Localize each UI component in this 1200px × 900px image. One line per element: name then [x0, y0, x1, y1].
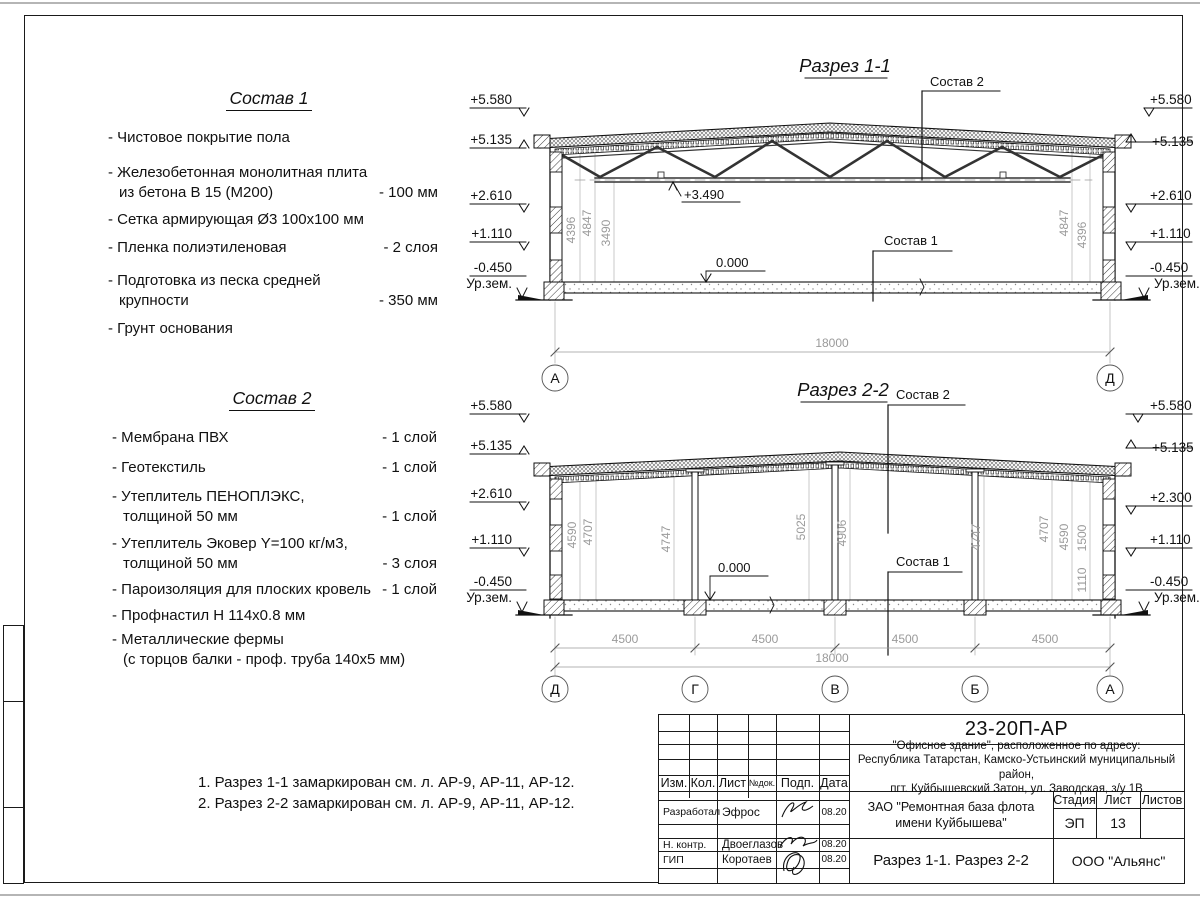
list-item: - Мембрана ПВХ - 1 слой: [112, 428, 437, 448]
paper-edge-top: [0, 2, 1200, 4]
levels-right-2: +5.580 +5.135 +2.300 +1.110 -0.450 Ур.зе…: [1126, 398, 1200, 612]
levels-left-1: +5.580 +5.135 +2.610 +1.110 -0.450 Ур.зе…: [466, 92, 529, 298]
sostav1-title-text: Состав 1: [226, 88, 313, 111]
list-item: - Утеплитель ПЕНОПЛЭКС,толщиной 50 мм - …: [112, 487, 437, 527]
ground-label: Ур.зем.: [1154, 590, 1200, 605]
svg-text:+5.135: +5.135: [470, 438, 512, 453]
svg-text:+1.110: +1.110: [471, 532, 512, 547]
col-podp: Подп.: [776, 775, 819, 791]
svg-text:4707: 4707: [581, 518, 595, 545]
drawing-sheet: { "sostav1": { "title": "Состав 1", "ite…: [0, 0, 1200, 900]
level-floor-1: 0.000: [716, 255, 749, 270]
levels-right-1: +5.580 +5.135 +2.610 +1.110 -0.450 Ур.зе…: [1126, 92, 1200, 298]
date-2: 08.20: [819, 838, 849, 851]
col-list: Лист: [717, 775, 748, 791]
svg-text:1110: 1110: [1075, 567, 1089, 592]
stage-value: ЭП: [1053, 808, 1096, 838]
name-efros: Эфрос: [719, 800, 775, 824]
sostav1-list: - Чистовое покрытие пола - Железобетонна…: [108, 128, 438, 339]
leader-labels-1: Состав 2 Состав 1: [873, 74, 1000, 301]
svg-text:Б: Б: [970, 681, 979, 697]
sostav1-title: Состав 1: [108, 88, 430, 109]
svg-text:1500: 1500: [1075, 524, 1089, 551]
span-dim-1: 18000 А Д: [542, 302, 1123, 391]
margin-box-3: [3, 807, 24, 884]
paper-edge-bottom: [0, 894, 1200, 896]
label-sostav1: Состав 1: [884, 233, 938, 248]
svg-text:+2.610: +2.610: [1150, 188, 1192, 203]
list-item: - Пленка полиэтиленовая - 2 слоя: [108, 238, 438, 258]
list-item: - Чистовое покрытие пола: [108, 128, 438, 148]
svg-text:4707: 4707: [1037, 515, 1051, 542]
doc-title: Разрез 1-1. Разрез 2-2: [849, 838, 1053, 883]
svg-text:4500: 4500: [1032, 632, 1059, 646]
stage-label: Стадия: [1053, 791, 1096, 808]
company: ООО "Альянс": [1053, 838, 1184, 883]
vertical-dims-1: 4396 4847 3490 4847 4396: [564, 209, 1089, 248]
svg-text:+5.580: +5.580: [470, 398, 512, 413]
svg-text:4847: 4847: [580, 209, 594, 236]
list-item: - Железобетонная монолитная плитаиз бето…: [108, 163, 438, 203]
level-floor-2: 0.000: [718, 560, 751, 575]
svg-text:+1.110: +1.110: [1150, 532, 1191, 547]
svg-text:-0.450: -0.450: [1150, 574, 1188, 589]
col-data: Дата: [819, 775, 849, 791]
col-kol: Кол.: [689, 775, 717, 791]
span-value: 18000: [815, 336, 849, 350]
svg-text:+1.110: +1.110: [471, 226, 512, 241]
walls-1: [550, 148, 1115, 300]
svg-text:+5.580: +5.580: [1150, 398, 1192, 413]
leader-labels-2: Состав 2 Состав 1: [888, 387, 965, 655]
svg-text:4747: 4747: [659, 525, 673, 552]
svg-text:-0.450: -0.450: [474, 574, 512, 589]
svg-text:+5.580: +5.580: [470, 92, 512, 107]
note-2: 2. Разрез 2-2 замаркирован см. л. АР-9, …: [198, 793, 575, 814]
svg-text:+2.610: +2.610: [470, 188, 512, 203]
ground-label: Ур.зем.: [1154, 276, 1200, 291]
role-gip: ГИП: [660, 851, 716, 868]
axis-bubble-a: А: [550, 370, 560, 386]
levels-left-2: +5.580 +5.135 +2.610 +1.110 -0.450 Ур.зе…: [466, 398, 529, 612]
axis-bubble-d: Д: [1105, 370, 1115, 386]
section1-title: Разрез 1-1: [799, 55, 891, 76]
svg-text:Д: Д: [550, 681, 560, 697]
role-nkontr: Н. контр.: [660, 838, 716, 851]
list-item: - Сетка армирующая Ø3 100х100 мм: [108, 210, 438, 230]
svg-text:+5.135: +5.135: [1152, 134, 1194, 149]
list-item: - Грунт основания: [108, 319, 438, 339]
svg-text:А: А: [1105, 681, 1115, 697]
svg-text:+5.580: +5.580: [1150, 92, 1192, 107]
floor-1: [516, 279, 1150, 300]
list-item: - Утеплитель Эковер Y=100 кг/м3,толщиной…: [112, 534, 437, 574]
sheet-notes: 1. Разрез 1-1 замаркирован см. л. АР-9, …: [198, 772, 575, 814]
internal-marks-1: +3.490 0.000: [669, 182, 765, 282]
sostav2-title-text: Состав 2: [229, 388, 316, 411]
ground-label: Ур.зем.: [466, 590, 512, 605]
section2-title: Разрез 2-2: [797, 379, 889, 400]
svg-text:4590: 4590: [1057, 523, 1071, 550]
svg-text:4847: 4847: [1057, 209, 1071, 236]
margin-box-1: [3, 625, 24, 702]
title-block: Изм. Кол. Лист №док. Подп. Дата Разработ…: [658, 714, 1185, 884]
col-ndok: №док.: [748, 775, 776, 791]
signatures: [776, 795, 819, 880]
svg-text:3490: 3490: [599, 219, 613, 246]
list-item: - Геотекстиль - 1 слой: [112, 458, 437, 478]
svg-text:4396: 4396: [564, 216, 578, 243]
sostav2-list: - Мембрана ПВХ - 1 слой - Геотекстиль - …: [112, 428, 437, 670]
list-item: - Подготовка из песка среднейкрупности -…: [108, 271, 438, 311]
object-address: "Офисное здание", расположенное по адрес…: [851, 744, 1182, 791]
svg-text:+5.135: +5.135: [1152, 440, 1194, 455]
date-1: 08.20: [819, 800, 849, 824]
svg-text:+2.610: +2.610: [470, 486, 512, 501]
sheet-number: 13: [1096, 808, 1140, 838]
sections-drawing: Разрез 1-1: [460, 55, 1200, 715]
list-item: - Металлические фермы(с торцов балки - п…: [112, 630, 437, 670]
margin-box-2: [3, 701, 24, 808]
date-3: 08.20: [819, 851, 849, 868]
svg-text:4590: 4590: [565, 521, 579, 548]
sostav2-title: Состав 2: [112, 388, 432, 409]
svg-text:4500: 4500: [752, 632, 779, 646]
internal-marks-2: 0.000: [705, 560, 768, 600]
svg-text:+1.110: +1.110: [1150, 226, 1191, 241]
vertical-dims-2: 4590 4707 4747 5025 4906 4747 4707 4590 …: [565, 513, 1089, 592]
col-izm: Изм.: [659, 775, 689, 791]
svg-text:Г: Г: [691, 681, 699, 697]
note-1: 1. Разрез 1-1 замаркирован см. л. АР-9, …: [198, 772, 575, 793]
level-truss: +3.490: [684, 187, 724, 202]
svg-text:4906: 4906: [835, 519, 849, 546]
svg-text:-0.450: -0.450: [1150, 260, 1188, 275]
svg-text:5025: 5025: [794, 513, 808, 540]
sheets-label: Листов: [1140, 791, 1184, 808]
client: ЗАО "Ремонтная база флота имени Куйбышев…: [849, 791, 1053, 838]
span-value: 18000: [815, 651, 849, 665]
name-dvoeglazov: Двоеглазов: [719, 838, 777, 851]
section-2-2: Разрез 2-2: [466, 379, 1200, 702]
role-razrabotal: Разработал: [660, 800, 716, 824]
floor-2: [516, 597, 1150, 615]
sheet-label: Лист: [1096, 791, 1140, 808]
svg-text:4500: 4500: [612, 632, 639, 646]
dim-extension-lines: [580, 148, 1090, 282]
svg-text:-0.450: -0.450: [474, 260, 512, 275]
svg-text:+2.300: +2.300: [1150, 490, 1192, 505]
svg-text:В: В: [830, 681, 839, 697]
svg-text:4500: 4500: [892, 632, 919, 646]
svg-text:+5.135: +5.135: [470, 132, 512, 147]
label-sostav2: Состав 2: [930, 74, 984, 89]
bay-dims-2: 4500 4500 4500 4500 18000 Д Г В Б А: [542, 617, 1123, 702]
svg-text:4396: 4396: [1075, 221, 1089, 248]
label-sostav2: Состав 2: [896, 387, 950, 402]
label-sostav1: Состав 1: [896, 554, 950, 569]
name-korotaev: Коротаев: [719, 851, 777, 868]
section-1-1: Разрез 1-1: [466, 55, 1200, 391]
list-item: - Профнастил Н 114х0.8 мм: [112, 606, 437, 626]
ground-label: Ур.зем.: [466, 276, 512, 291]
roof-1: [534, 123, 1131, 155]
list-item: - Пароизоляция для плоских кровель - 1 с…: [112, 580, 437, 600]
svg-text:4747: 4747: [969, 523, 983, 550]
